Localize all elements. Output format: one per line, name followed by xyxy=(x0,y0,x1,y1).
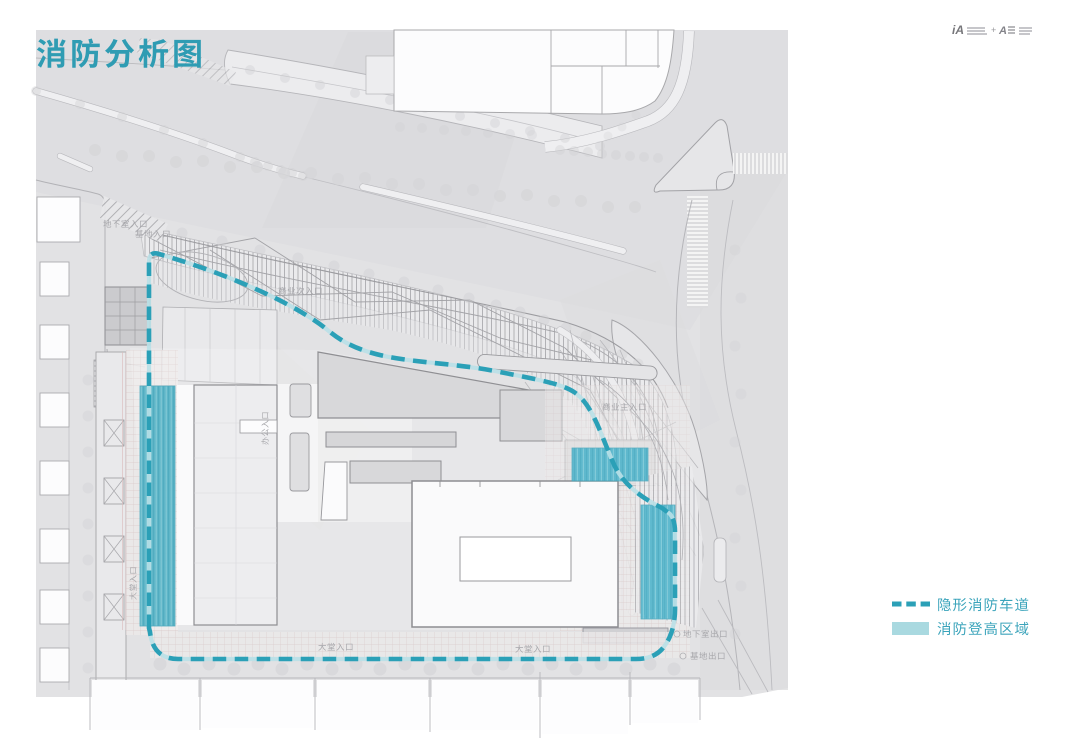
svg-text:A: A xyxy=(998,25,1007,37)
svg-text:iA: iA xyxy=(952,23,964,37)
svg-text:+: + xyxy=(991,25,996,35)
